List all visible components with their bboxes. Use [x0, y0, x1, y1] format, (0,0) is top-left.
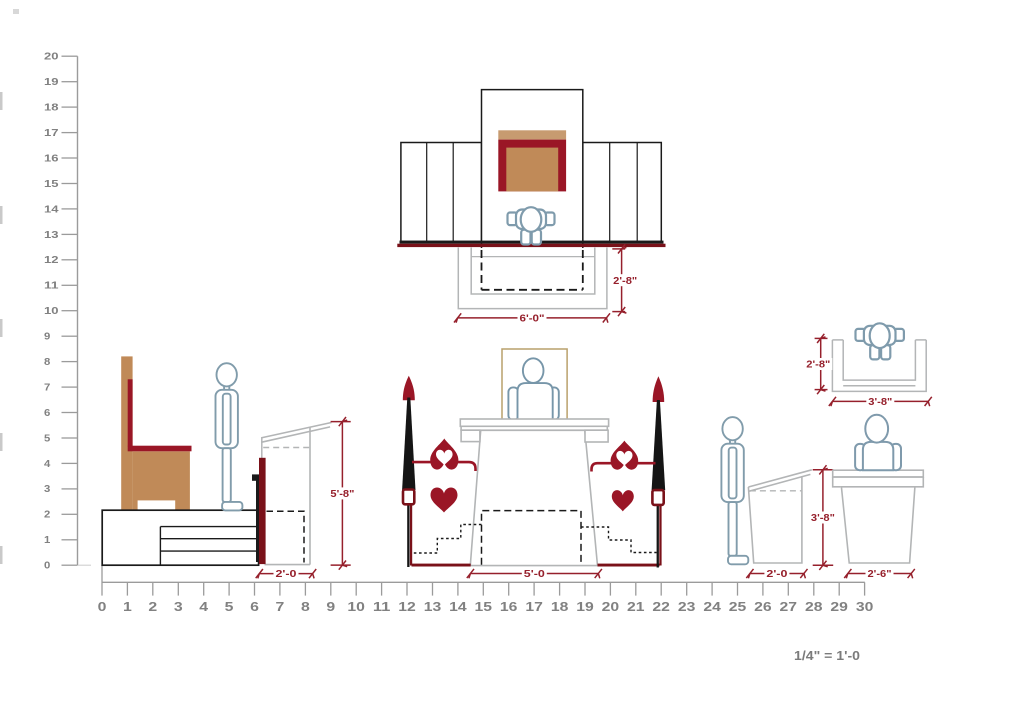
svg-text:16: 16 — [44, 153, 59, 164]
svg-text:13: 13 — [424, 599, 442, 614]
svg-text:1: 1 — [123, 599, 132, 614]
svg-text:1/4" = 1'-0: 1/4" = 1'-0 — [794, 648, 860, 663]
svg-text:2'-8": 2'-8" — [806, 359, 830, 371]
svg-text:3'-8": 3'-8" — [868, 396, 892, 408]
svg-text:7: 7 — [276, 599, 285, 614]
svg-text:0: 0 — [44, 561, 51, 572]
svg-text:5'-8": 5'-8" — [330, 488, 354, 500]
svg-text:19: 19 — [576, 599, 594, 614]
svg-text:17: 17 — [525, 599, 543, 614]
svg-text:0: 0 — [98, 599, 107, 614]
svg-text:8: 8 — [44, 357, 51, 368]
svg-text:20: 20 — [44, 52, 59, 63]
svg-text:17: 17 — [44, 128, 59, 139]
svg-text:16: 16 — [500, 599, 518, 614]
svg-text:2'-6": 2'-6" — [868, 568, 892, 580]
svg-text:25: 25 — [729, 599, 747, 614]
svg-text:3: 3 — [174, 599, 183, 614]
svg-text:2: 2 — [148, 599, 157, 614]
svg-text:10: 10 — [44, 306, 59, 317]
svg-text:12: 12 — [44, 255, 59, 266]
svg-text:9: 9 — [44, 332, 51, 343]
svg-text:8: 8 — [301, 599, 310, 614]
svg-text:3'-8": 3'-8" — [811, 512, 835, 524]
svg-text:13: 13 — [44, 230, 59, 241]
svg-text:24: 24 — [703, 599, 721, 614]
svg-text:11: 11 — [44, 281, 59, 292]
svg-text:15: 15 — [44, 179, 59, 190]
svg-text:12: 12 — [398, 599, 416, 614]
svg-text:14: 14 — [449, 599, 467, 614]
svg-text:30: 30 — [856, 599, 874, 614]
svg-text:3: 3 — [44, 484, 51, 495]
svg-text:18: 18 — [551, 599, 569, 614]
svg-text:23: 23 — [678, 599, 696, 614]
svg-text:1: 1 — [44, 535, 51, 546]
svg-text:6: 6 — [44, 408, 51, 419]
svg-text:2'-0: 2'-0 — [766, 568, 787, 580]
svg-text:7: 7 — [44, 383, 51, 394]
svg-text:5'-0: 5'-0 — [524, 568, 545, 580]
svg-text:18: 18 — [44, 103, 59, 114]
svg-text:15: 15 — [475, 599, 493, 614]
svg-text:19: 19 — [44, 77, 59, 88]
svg-text:14: 14 — [44, 204, 59, 215]
svg-text:22: 22 — [652, 599, 670, 614]
svg-text:10: 10 — [347, 599, 365, 614]
svg-text:9: 9 — [326, 599, 335, 614]
svg-text:2'-8": 2'-8" — [613, 275, 637, 287]
svg-text:5: 5 — [225, 599, 234, 614]
svg-text:6: 6 — [250, 599, 259, 614]
svg-text:11: 11 — [373, 599, 391, 614]
svg-text:27: 27 — [780, 599, 798, 614]
svg-text:5: 5 — [44, 433, 51, 444]
svg-text:4: 4 — [199, 599, 209, 614]
svg-text:26: 26 — [754, 599, 772, 614]
svg-text:28: 28 — [805, 599, 823, 614]
svg-text:2: 2 — [44, 510, 51, 521]
svg-text:21: 21 — [627, 599, 645, 614]
svg-text:20: 20 — [602, 599, 620, 614]
svg-text:6'-0": 6'-0" — [520, 313, 545, 325]
svg-text:4: 4 — [44, 459, 51, 470]
svg-text:29: 29 — [830, 599, 848, 614]
svg-text:2'-0: 2'-0 — [276, 568, 297, 580]
